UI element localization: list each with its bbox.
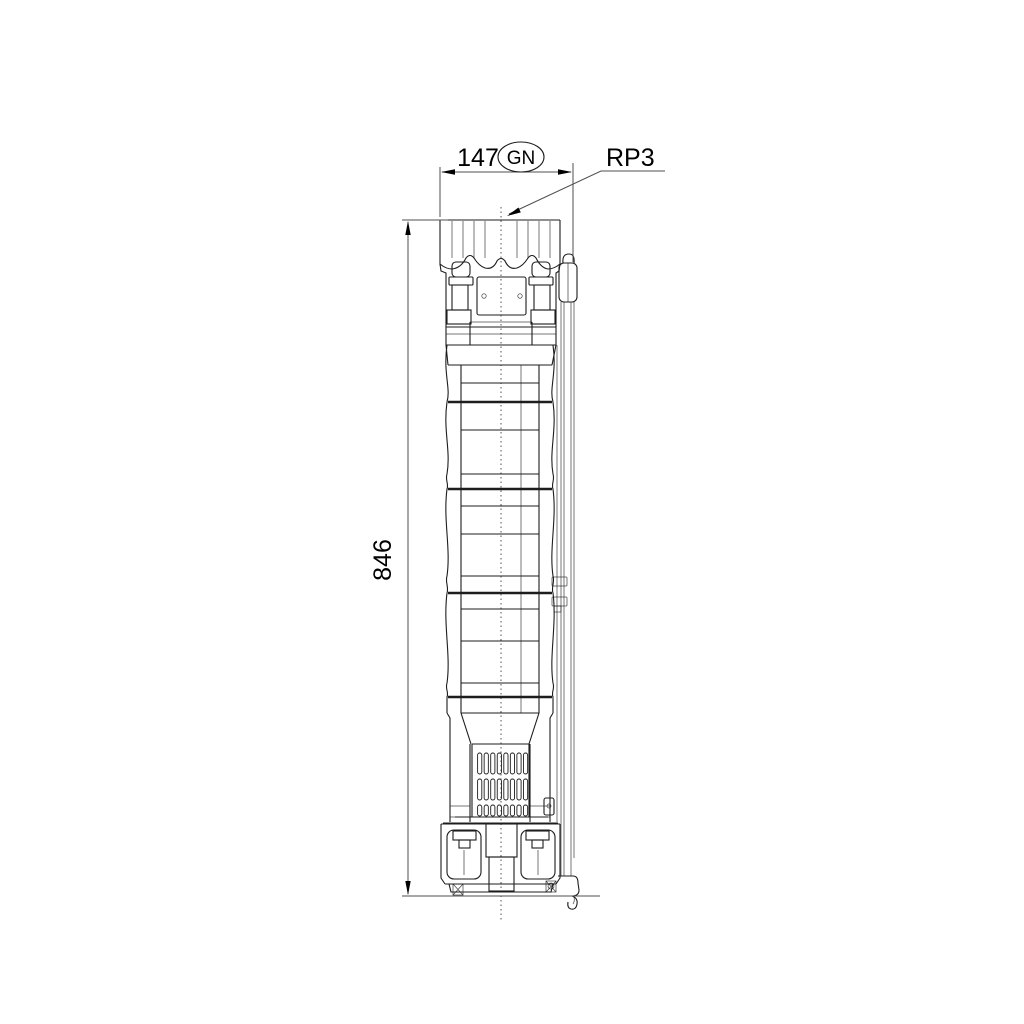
- motor-cartridge-seams: [464, 850, 538, 875]
- strainer-slot: [517, 753, 521, 774]
- strainer-slot: [491, 753, 495, 774]
- cable-end-hook: [568, 896, 577, 909]
- strainer-slot: [504, 753, 508, 774]
- connection-leader-arrow: [506, 208, 521, 219]
- nameplate-screw-right: [518, 294, 522, 298]
- strainer-slot: [478, 805, 482, 816]
- motor-center-block-upper: [486, 824, 517, 857]
- strainer-slot: [510, 753, 514, 774]
- pump-technical-drawing: 147 GN RP3 846: [0, 0, 1024, 1024]
- height-arrow-top: [405, 221, 410, 235]
- cable-bottom-guard: [558, 876, 579, 896]
- suction-leg-feet: [450, 806, 550, 817]
- nameplate-screw-left: [482, 294, 486, 298]
- strainer-slot: [484, 753, 488, 774]
- motor-outline: [441, 824, 560, 892]
- nameplate: [477, 277, 526, 315]
- width-arrow-right: [558, 169, 572, 174]
- bolt-post-left: [447, 262, 473, 324]
- connection-leader-line: [509, 171, 665, 214]
- suction-outline: [443, 713, 558, 823]
- height-dimension-value: 846: [369, 539, 397, 581]
- cable-end-hook-inner: [573, 897, 574, 904]
- bolt-post-right: [529, 262, 555, 324]
- strainer-slot: [491, 779, 495, 800]
- motor-foot-left: [453, 884, 463, 895]
- width-dimension-value: 147: [457, 144, 499, 172]
- power-cable: [552, 254, 579, 909]
- strainer-slots: [478, 753, 528, 816]
- body-inner-edges: [461, 365, 539, 713]
- upper-housing-outline: [440, 264, 560, 345]
- strainer-slot: [491, 805, 495, 816]
- strainer-slot: [504, 805, 508, 816]
- cable-run: [561, 302, 574, 876]
- height-arrow-bottom: [405, 881, 410, 895]
- cable-clip: [552, 577, 567, 612]
- motor-center-block-lower: [489, 857, 514, 891]
- strainer-slot: [523, 779, 527, 800]
- strainer-slot: [510, 779, 514, 800]
- gn-badge: GN: [498, 142, 544, 172]
- strainer-slot: [478, 753, 482, 774]
- cable-entry-cap: [563, 254, 574, 263]
- width-arrow-left: [441, 169, 455, 174]
- strainer-slot: [478, 779, 482, 800]
- gn-badge-label: GN: [507, 148, 536, 169]
- width-dimension: 147 GN: [440, 142, 573, 262]
- strainer-slot: [504, 779, 508, 800]
- upper-housing: [440, 262, 560, 345]
- cable-guard-left: [446, 345, 448, 713]
- cable-guard-clamp: [544, 798, 554, 815]
- pump-outline: [440, 207, 579, 920]
- pump-stage-body: [446, 345, 557, 822]
- motor-bolt-left: [453, 831, 476, 848]
- stage-lines-thin: [461, 383, 539, 713]
- cable-guard-right: [552, 345, 554, 713]
- strainer-slot: [510, 805, 514, 816]
- width-extension-lines: [440, 163, 573, 262]
- motor-bolt-right: [526, 831, 549, 848]
- connection-label: RP3: [606, 144, 655, 172]
- strainer-slot: [484, 779, 488, 800]
- suction-interconnector: [443, 713, 558, 823]
- strainer-slot: [517, 779, 521, 800]
- strainer-slot: [523, 805, 527, 816]
- strainer-slot: [484, 805, 488, 816]
- strainer-slot: [523, 753, 527, 774]
- motor-section: [441, 824, 560, 895]
- strainer-slot: [517, 805, 521, 816]
- stage-joint-lines: [448, 402, 552, 697]
